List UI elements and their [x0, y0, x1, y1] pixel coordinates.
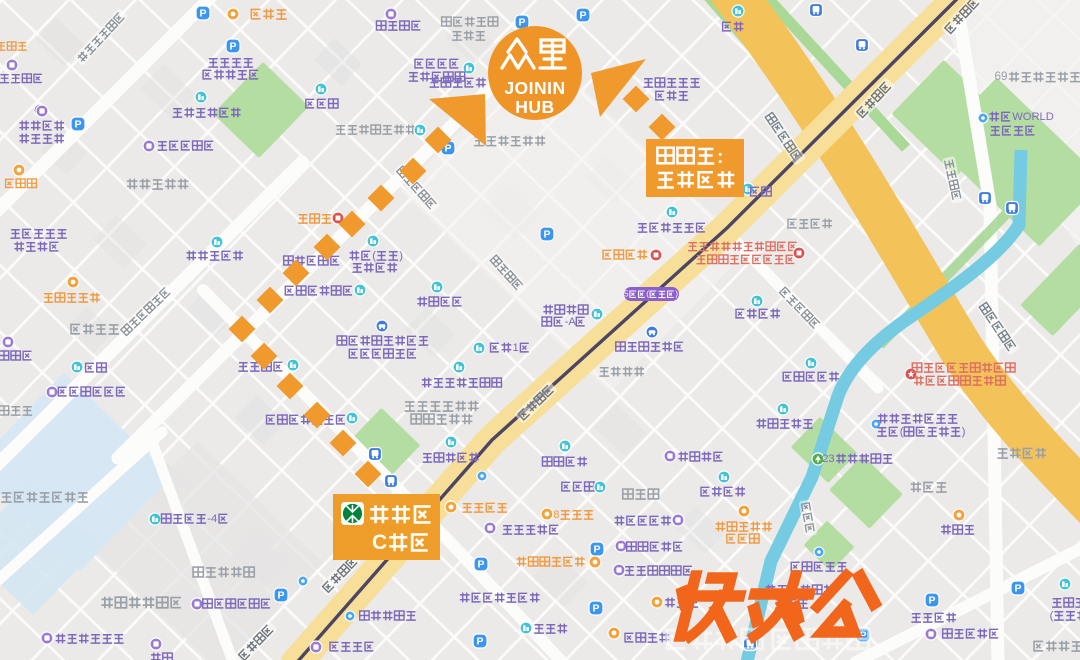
svg-text:(: ( [372, 250, 376, 262]
svg-text:): ) [962, 426, 966, 438]
svg-text:P: P [1014, 583, 1021, 595]
svg-text:-4: -4 [207, 513, 217, 525]
svg-text::: : [717, 147, 723, 168]
svg-text:P: P [229, 41, 236, 53]
svg-text:(: ( [1050, 610, 1054, 622]
svg-text:C: C [372, 531, 387, 554]
svg-text:HUB: HUB [515, 97, 554, 117]
svg-text:-A: -A [565, 316, 577, 328]
svg-text:23: 23 [822, 453, 834, 465]
svg-text:P: P [592, 603, 599, 615]
svg-text:69: 69 [995, 70, 1008, 83]
svg-text:P: P [74, 119, 81, 131]
svg-text:(: ( [646, 289, 649, 299]
svg-text:): ) [675, 289, 678, 299]
svg-text:5: 5 [624, 289, 629, 299]
svg-text:P: P [199, 8, 206, 20]
svg-text:1: 1 [513, 342, 519, 354]
svg-text:P: P [476, 636, 483, 648]
svg-text:P: P [518, 17, 525, 29]
svg-text:P: P [593, 544, 600, 556]
svg-text:8: 8 [553, 509, 559, 521]
svg-text:): ) [399, 250, 403, 262]
svg-text:WORLD: WORLD [1012, 111, 1054, 123]
svg-text:P: P [928, 595, 935, 607]
svg-text:JOININ: JOININ [504, 78, 565, 98]
svg-text:P: P [477, 559, 484, 571]
svg-text:P: P [543, 229, 550, 241]
svg-text:P: P [579, 10, 586, 22]
svg-text:P: P [277, 590, 284, 602]
svg-text:(: ( [900, 426, 904, 438]
